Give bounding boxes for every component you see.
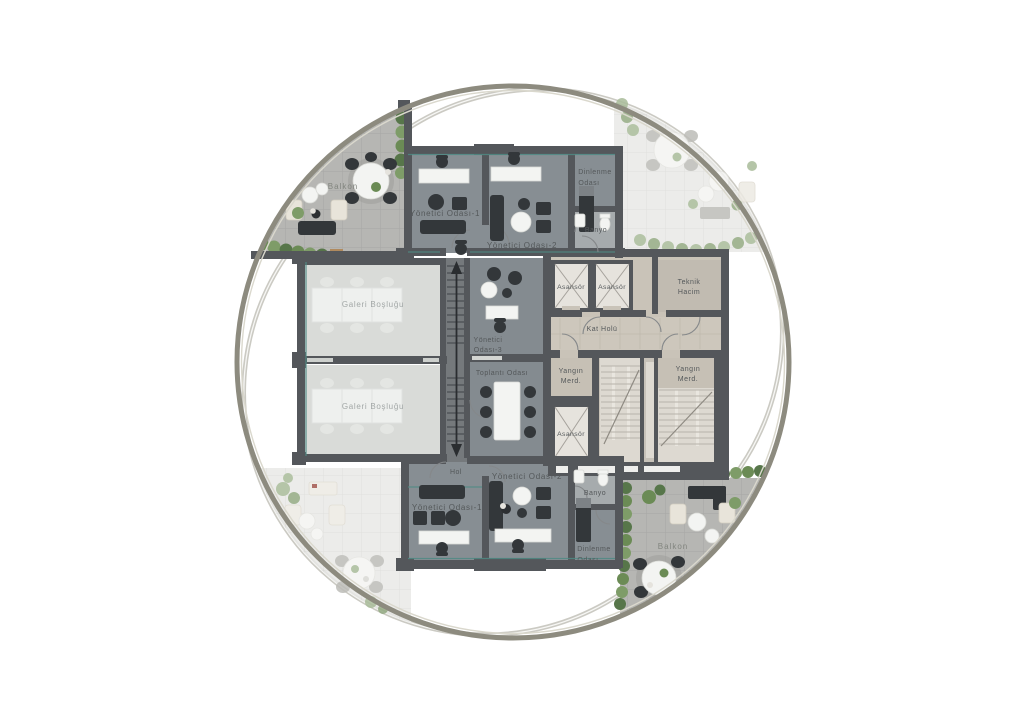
label-yonetici-odasi-1-bottom: Yönetici Odası-1 [412, 503, 482, 512]
label-toplanti: Toplantı Odası [476, 370, 528, 377]
label-yonetici-odasi-2-bottom: Yönetici Odası-2 [492, 472, 562, 481]
label-yonetici-odasi-2-top: Yönetici Odası-2 [487, 241, 557, 250]
label-yangin-right-2: Merd. [678, 376, 698, 383]
label-balkon-bottom-right: Balkon [658, 542, 688, 551]
label-yangin-right-1: Yangın [676, 366, 701, 373]
label-balkon-top-left: Balkon [328, 182, 358, 191]
label-hol: Hol [450, 469, 462, 476]
floor-plan-canvas: Balkon [0, 0, 1024, 723]
label-banyo-top: Banyo [585, 227, 607, 234]
label-dinlenme-bottom-2: Odası [577, 557, 598, 564]
label-asansor-2: Asansör [598, 284, 626, 291]
label-dinlenme-bottom-1: Dinlenme [577, 546, 611, 553]
label-yonetici-odasi-1-top: Yönetici Odası-1 [410, 209, 480, 218]
label-asansor-1: Asansör [557, 284, 585, 291]
stair-shaft-gap [646, 362, 654, 458]
label-asansor-3: Asansör [557, 431, 585, 438]
label-banyo-bottom: Banyo [584, 490, 606, 497]
label-yangin-left-2: Merd. [561, 378, 581, 385]
label-yo3-1: Yönetici [474, 337, 503, 344]
label-galeri-2: Galeri Boşluğu [342, 402, 404, 411]
terrace-top-right-faded [614, 98, 769, 256]
room-fill-teknik [656, 260, 722, 312]
label-dinlenme-top-2: Odası [578, 180, 599, 187]
label-galeri-1: Galeri Boşluğu [342, 300, 404, 309]
balcony-bottom-right: Balkon [614, 463, 777, 614]
louver-strip-left [307, 358, 333, 362]
terrace-bottom-left-faded [256, 468, 411, 623]
label-teknik-2: Hacim [678, 289, 700, 296]
label-yo3-2: Odası-3 [474, 347, 502, 354]
meeting-room-furniture [480, 382, 536, 440]
louver-strip-yo3 [472, 356, 502, 360]
office-yo2-bottom-furniture [489, 481, 551, 553]
louver-strip-right [423, 358, 439, 362]
label-yangin-left-1: Yangın [559, 368, 584, 375]
label-teknik-1: Teknik [678, 279, 701, 286]
floor-plan-svg: Balkon [0, 0, 1024, 723]
room-dinlenme-bottom-furniture [576, 498, 591, 542]
label-kat-holu: Kat Holü [587, 326, 618, 333]
room-fill-yangin-right-landing [658, 358, 716, 388]
label-dinlenme-top-1: Dinlenme [578, 169, 612, 176]
balcony-tl-dining-set [345, 152, 397, 204]
room-fill-kat-holu [548, 317, 724, 350]
room-fill-stair-1 [600, 358, 642, 462]
